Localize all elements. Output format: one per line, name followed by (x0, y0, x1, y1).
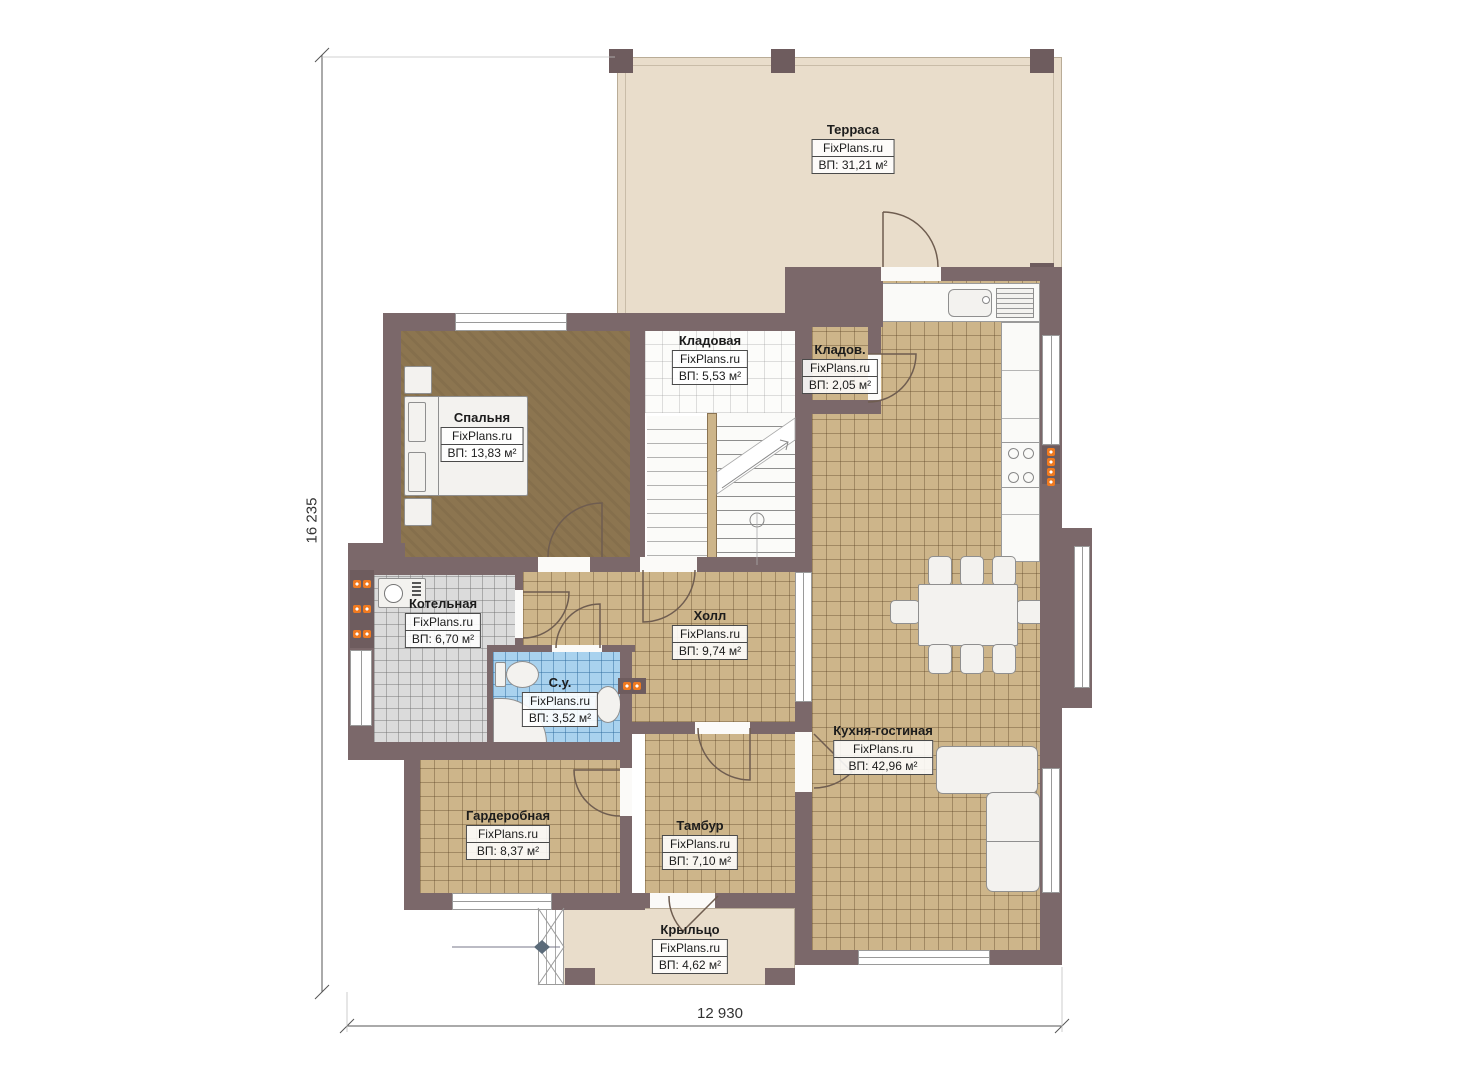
radiator-dot-icon (1047, 468, 1055, 476)
room-name: Гардеробная (466, 808, 550, 823)
bed-pillow (408, 402, 426, 442)
room-area: ВП: 42,96 м² (833, 758, 933, 775)
dimension-label-horizontal: 12 930 (660, 1005, 780, 1022)
wall (383, 313, 401, 575)
room-label-kitchen-living: Кухня-гостиная FixPlans.ru ВП: 42,96 м² (833, 723, 933, 775)
room-label-wardrobe: Гардеробная FixPlans.ru ВП: 8,37 м² (466, 808, 550, 860)
chair (992, 644, 1016, 674)
door-opening-boiler (515, 590, 523, 638)
window (455, 313, 567, 331)
radiator-dot-icon (353, 605, 361, 613)
chair (928, 644, 952, 674)
nightstand (404, 366, 432, 394)
room-label-vestibule: Тамбур FixPlans.ru ВП: 7,10 м² (662, 818, 738, 870)
window (452, 893, 552, 910)
wall (373, 560, 523, 575)
door-opening-hall-vestibule (695, 722, 750, 734)
wall (785, 281, 883, 327)
room-name: Терраса (812, 122, 895, 137)
room-name: Котельная (405, 596, 481, 611)
radiator-dot-icon (1047, 458, 1055, 466)
room-label-bedroom: Спальня FixPlans.ru ВП: 13,83 м² (441, 410, 524, 462)
room-label-hall: Холл FixPlans.ru ВП: 9,74 м² (672, 608, 748, 660)
radiator-dot-icon (1047, 478, 1055, 486)
watermark: FixPlans.ru (441, 427, 524, 445)
radiator-dot-icon (633, 682, 641, 690)
watermark: FixPlans.ru (662, 835, 738, 853)
door-opening-terrace (881, 267, 941, 281)
porch-steps (538, 908, 564, 985)
window (1042, 768, 1060, 893)
room-floor-vestibule (645, 732, 795, 895)
terrace-column (609, 49, 633, 73)
stove-burner-icon (1023, 448, 1034, 459)
room-area: ВП: 4,62 м² (652, 957, 728, 974)
toilet-tank (495, 662, 506, 687)
terrace-column (771, 49, 795, 73)
radiator-dot-icon (1047, 448, 1055, 456)
stove-burner-icon (1008, 448, 1019, 459)
floor-plan: 16 235 12 930 Терраса FixPlans.ru ВП: 31… (0, 0, 1474, 1080)
room-label-terrace: Терраса FixPlans.ru ВП: 31,21 м² (812, 122, 895, 174)
dimension-label-vertical: 16 235 (304, 481, 321, 561)
radiator (350, 570, 374, 648)
wall (487, 645, 493, 750)
chair (890, 600, 920, 624)
watermark: FixPlans.ru (802, 359, 878, 377)
room-area: ВП: 3,52 м² (522, 710, 598, 727)
door-opening-kitchen (795, 732, 812, 792)
chair (960, 556, 984, 586)
door-opening-wardrobe (620, 768, 632, 816)
radiator-dot-icon (353, 580, 361, 588)
room-area: ВП: 6,70 м² (405, 631, 481, 648)
chair (960, 644, 984, 674)
room-name: Тамбур (662, 818, 738, 833)
room-label-storage-small: Кладов. FixPlans.ru ВП: 2,05 м² (802, 342, 878, 394)
wall (348, 742, 620, 760)
bed-blanket-line (438, 397, 439, 495)
window (858, 950, 990, 965)
radiator (618, 678, 646, 694)
dining-table (918, 584, 1018, 646)
watermark: FixPlans.ru (672, 625, 748, 643)
stairs-flight-left (647, 416, 707, 561)
watermark: FixPlans.ru (522, 692, 598, 710)
room-name: Кладовая (672, 333, 748, 348)
wall (565, 968, 595, 985)
room-name: Холл (672, 608, 748, 623)
room-name: Спальня (441, 410, 524, 425)
wall (630, 331, 645, 572)
bed-pillow (408, 452, 426, 492)
watermark: FixPlans.ru (672, 350, 748, 368)
door-opening-porch (650, 893, 715, 908)
room-area: ВП: 7,10 м² (662, 853, 738, 870)
room-area: ВП: 5,53 м² (672, 368, 748, 385)
stairs-divider (707, 413, 717, 565)
room-name: С.у. (522, 675, 598, 690)
radiator-dot-icon (363, 580, 371, 588)
chair (992, 556, 1016, 586)
room-name: Крыльцо (652, 922, 728, 937)
nightstand (404, 498, 432, 526)
room-label-storage: Кладовая FixPlans.ru ВП: 5,53 м² (672, 333, 748, 385)
window-bay (1074, 546, 1090, 688)
stove-burner-icon (1023, 472, 1034, 483)
door-opening-bathroom (552, 645, 602, 652)
boiler-vent-icon (412, 582, 421, 596)
sofa (986, 792, 1040, 892)
radiator (1042, 446, 1060, 484)
chair (928, 556, 952, 586)
hall-kitchen-opening (795, 572, 812, 702)
watermark: FixPlans.ru (466, 825, 550, 843)
wall (765, 968, 795, 985)
sofa-chaise (936, 746, 1038, 794)
door-opening-bedroom (538, 557, 590, 572)
room-area: ВП: 2,05 м² (802, 377, 878, 394)
watermark: FixPlans.ru (812, 139, 895, 157)
stove-burner-icon (1008, 472, 1019, 483)
room-label-boiler: Котельная FixPlans.ru ВП: 6,70 м² (405, 596, 481, 648)
boiler-dial-icon (384, 584, 403, 603)
window (350, 650, 372, 726)
room-area: ВП: 13,83 м² (441, 445, 524, 462)
dish-drainer (996, 288, 1034, 318)
watermark: FixPlans.ru (405, 613, 481, 631)
wall (404, 742, 420, 910)
stove (1001, 442, 1040, 488)
window (1042, 335, 1060, 445)
room-name: Кладов. (802, 342, 878, 357)
door-opening-stairs (640, 557, 697, 572)
watermark: FixPlans.ru (833, 740, 933, 758)
room-label-porch: Крыльцо FixPlans.ru ВП: 4,62 м² (652, 922, 728, 974)
wall (795, 400, 881, 414)
room-name: Кухня-гостиная (833, 723, 933, 738)
radiator-dot-icon (363, 630, 371, 638)
radiator-dot-icon (353, 630, 361, 638)
room-area: ВП: 31,21 м² (812, 157, 895, 174)
room-area: ВП: 9,74 м² (672, 643, 748, 660)
radiator-dot-icon (363, 605, 371, 613)
room-label-bathroom: С.у. FixPlans.ru ВП: 3,52 м² (522, 675, 598, 727)
radiator-dot-icon (623, 682, 631, 690)
watermark: FixPlans.ru (652, 939, 728, 957)
room-area: ВП: 8,37 м² (466, 843, 550, 860)
terrace-column (1030, 49, 1054, 73)
faucet-icon (982, 296, 990, 304)
stairs-flight-right (717, 413, 795, 565)
